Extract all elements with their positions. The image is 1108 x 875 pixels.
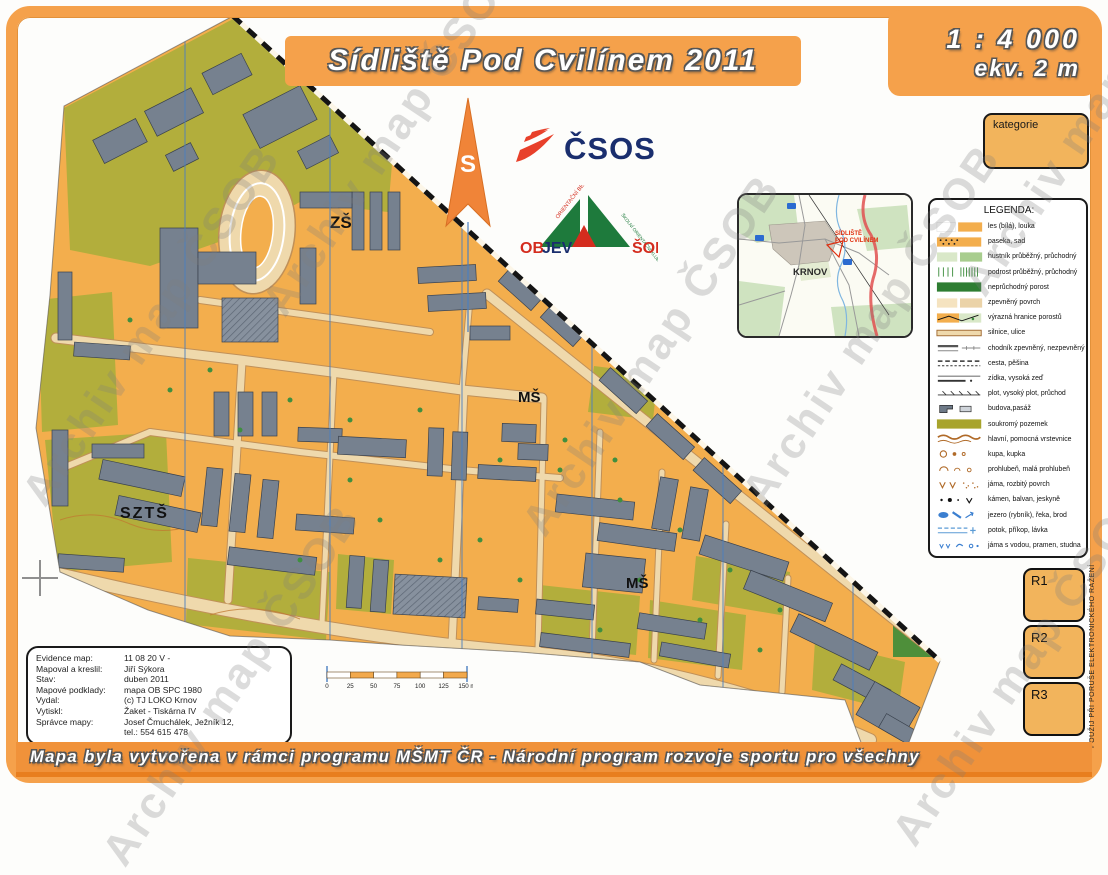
program-banner: Mapa byla vytvořena v rámci programu MŠM… — [16, 742, 1092, 777]
orienteering-map-sheet: { "page": { "title": "Sídliště Pod Cvilí… — [0, 0, 1108, 789]
csos-logo-text: ČSOS — [564, 131, 656, 167]
kategorie-box: kategorie — [983, 113, 1089, 169]
map-title: Sídliště Pod Cvilínem 2011 — [328, 44, 758, 78]
legend-swatch-vegetation-boundary — [936, 312, 984, 324]
legend-item: jezero (rybník), řeka, brod — [936, 508, 1082, 523]
legend-swatch-thicket — [936, 251, 984, 263]
legend-swatch-clearing-orchard — [936, 236, 984, 248]
scale-bar: 0 25 50 75 100 125 150 m — [321, 664, 473, 701]
legend-item: kámen, balvan, jeskyně — [936, 492, 1082, 507]
scale-tick: 0 — [325, 683, 329, 690]
legend-item: silnice, ulice — [936, 325, 1082, 340]
backup-punch-boxes: R1 R2 R3 — [1023, 568, 1085, 739]
legend-swatch-forest-meadow — [936, 221, 984, 233]
scale-tick: 100 — [415, 683, 426, 690]
legend-swatch-stone-boulder-cave — [936, 494, 984, 506]
legend-item: zpevněný povrch — [936, 295, 1082, 310]
map-label-zs: ZŠ — [330, 213, 352, 232]
legend-swatch-contours — [936, 433, 984, 445]
legend-swatch-stream-ditch — [936, 524, 984, 536]
legend-swatch-undergrowth — [936, 266, 984, 278]
legend-item: cesta, pěšina — [936, 356, 1082, 371]
program-banner-text: Mapa byla vytvořena v rámci programu MŠM… — [30, 748, 920, 767]
legend-swatch-waterhole-spring-well — [936, 540, 984, 552]
legend-item: zídka, vysoká zeď — [936, 371, 1082, 386]
punch-box-r3: R3 — [1023, 682, 1085, 736]
legend-item: potok, příkop, lávka — [936, 523, 1082, 538]
csos-logo: ČSOS — [514, 128, 656, 170]
legend-swatch-fence — [936, 388, 984, 400]
legend-swatch-knoll — [936, 448, 984, 460]
kategorie-label: kategorie — [993, 119, 1038, 131]
legend-item: podrost průběžný, průchodný — [936, 265, 1082, 280]
north-arrow-label: S — [460, 151, 476, 178]
legend-item: les (bílá), louka — [936, 219, 1082, 234]
legend-swatch-paved-area — [936, 297, 984, 309]
info-row: Evidence map:11 08 20 V - — [36, 653, 284, 664]
info-row: Mapoval a kreslil:Jiří Sýkora — [36, 664, 284, 675]
map-label-ms1: MŠ — [518, 388, 541, 406]
legend-item: paseka, sad — [936, 234, 1082, 249]
sok-text: ŠOK — [632, 238, 658, 257]
legend-box: LEGENDA: les (bílá), louka paseka, sad h… — [928, 198, 1088, 558]
inset-site-label-2: POD CVILÍNEM — [835, 236, 878, 244]
csos-swoosh-icon — [514, 128, 560, 170]
legend-swatch-building-passage — [936, 403, 984, 415]
info-row: Vytiskl:Žaket - Tiskárna IV — [36, 706, 284, 717]
info-row: Mapové podklady:mapa OB SPC 1980 — [36, 685, 284, 696]
legend-item: prohlubeň, malá prohlubeň — [936, 462, 1082, 477]
legend-swatch-wall — [936, 372, 984, 384]
map-label-szts: SZTŠ — [120, 503, 169, 522]
legend-item: neprůchodný porost — [936, 280, 1082, 295]
legend-swatch-road-street — [936, 327, 984, 339]
legend-item: budova,pasáž — [936, 401, 1082, 416]
info-row: Vydal:(c) TJ LOKO Krnov — [36, 695, 284, 706]
legend-item: soukromý pozemek — [936, 416, 1082, 431]
legend-swatch-footpath-paved — [936, 342, 984, 354]
objev-sok-logo: ORIENTAČNÍ BĚH ŠKOLNÍ ORIENTAČNÍ KLUBY O… — [518, 185, 658, 270]
scale-tick: 25 — [347, 683, 354, 690]
punch-box-r2: R2 — [1023, 625, 1085, 679]
inset-city-label: KRNOV — [793, 267, 828, 278]
map-scale: 1 : 4 000 — [946, 24, 1080, 55]
scale-tick: 75 — [393, 683, 400, 690]
map-info-table: Evidence map:11 08 20 V - Mapoval a kres… — [26, 646, 292, 745]
info-row: Správce mapy:Josef Čmuchálek, Ježník 12,… — [36, 717, 284, 738]
inset-site-label-1: SÍDLIŠTĚ — [835, 229, 862, 237]
legend-item: chodník zpevněný, nezpevněný — [936, 341, 1082, 356]
scale-tick: 50 — [370, 683, 377, 690]
backup-punch-note: POUŽIJ PŘI PORUŠE ELEKTRONICKÉHO RAŽENÍ — [1089, 570, 1101, 748]
scale-tick: 125 — [438, 683, 449, 690]
legend-item: hustník průběžný, průchodný — [936, 249, 1082, 264]
map-label-ms2: MŠ — [626, 574, 649, 592]
legend-item: kupa, kupka — [936, 447, 1082, 462]
legend-item: výrazná hranice porostů — [936, 310, 1082, 325]
legend-item: jáma, rozbitý povrch — [936, 477, 1082, 492]
legend-title: LEGENDA: — [936, 205, 1082, 216]
location-inset-map: KRNOV SÍDLIŠTĚ POD CVILÍNEM — [737, 193, 913, 338]
legend-swatch-impassable-vegetation — [936, 281, 984, 293]
punch-box-r1: R1 — [1023, 568, 1085, 622]
info-row: Stav:duben 2011 — [36, 674, 284, 685]
contour-equivalence: ekv. 2 m — [974, 55, 1080, 82]
legend-swatch-track-path — [936, 357, 984, 369]
legend-swatch-private-area — [936, 418, 984, 430]
scale-box: 1 : 4 000 ekv. 2 m — [888, 10, 1096, 96]
legend-item: jáma s vodou, pramen, studna — [936, 538, 1082, 553]
legend-item: plot, vysoký plot, průchod — [936, 386, 1082, 401]
legend-item: hlavní, pomocná vrstevnice — [936, 432, 1082, 447]
legend-swatch-depression — [936, 464, 984, 476]
legend-swatch-lake-river-ford — [936, 509, 984, 521]
objev-jev-text: JEV — [542, 240, 573, 257]
legend-swatch-pit-rough-ground — [936, 479, 984, 491]
scale-tick: 150 m — [458, 683, 473, 690]
objev-ob-text: OB — [520, 240, 544, 257]
map-title-bar: Sídliště Pod Cvilínem 2011 — [285, 36, 801, 86]
